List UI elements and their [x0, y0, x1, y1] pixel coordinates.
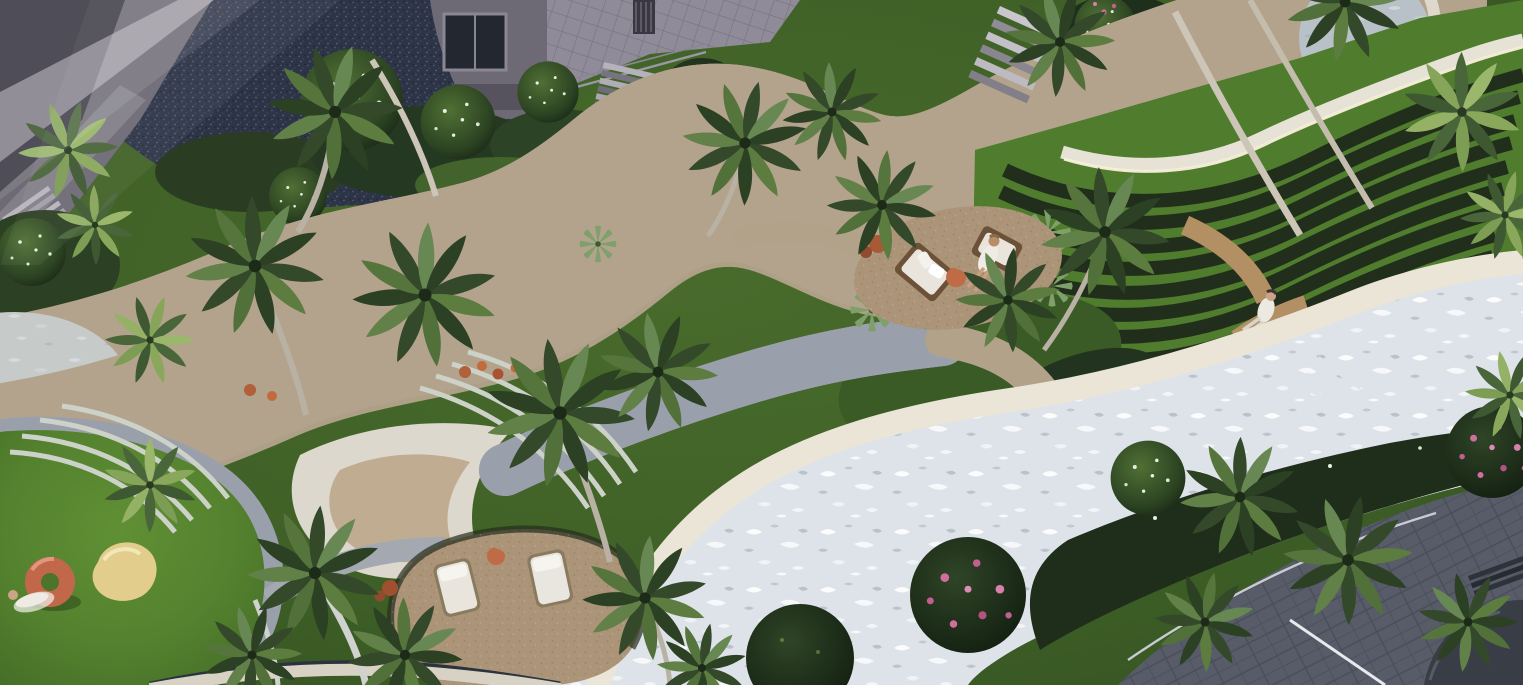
bush	[1111, 441, 1186, 516]
bush	[517, 61, 578, 122]
bush	[421, 85, 496, 160]
agave-plant	[580, 226, 617, 263]
scene-svg	[0, 0, 1523, 685]
landscape-render	[0, 0, 1523, 685]
pink-flower-bush	[910, 537, 1026, 653]
